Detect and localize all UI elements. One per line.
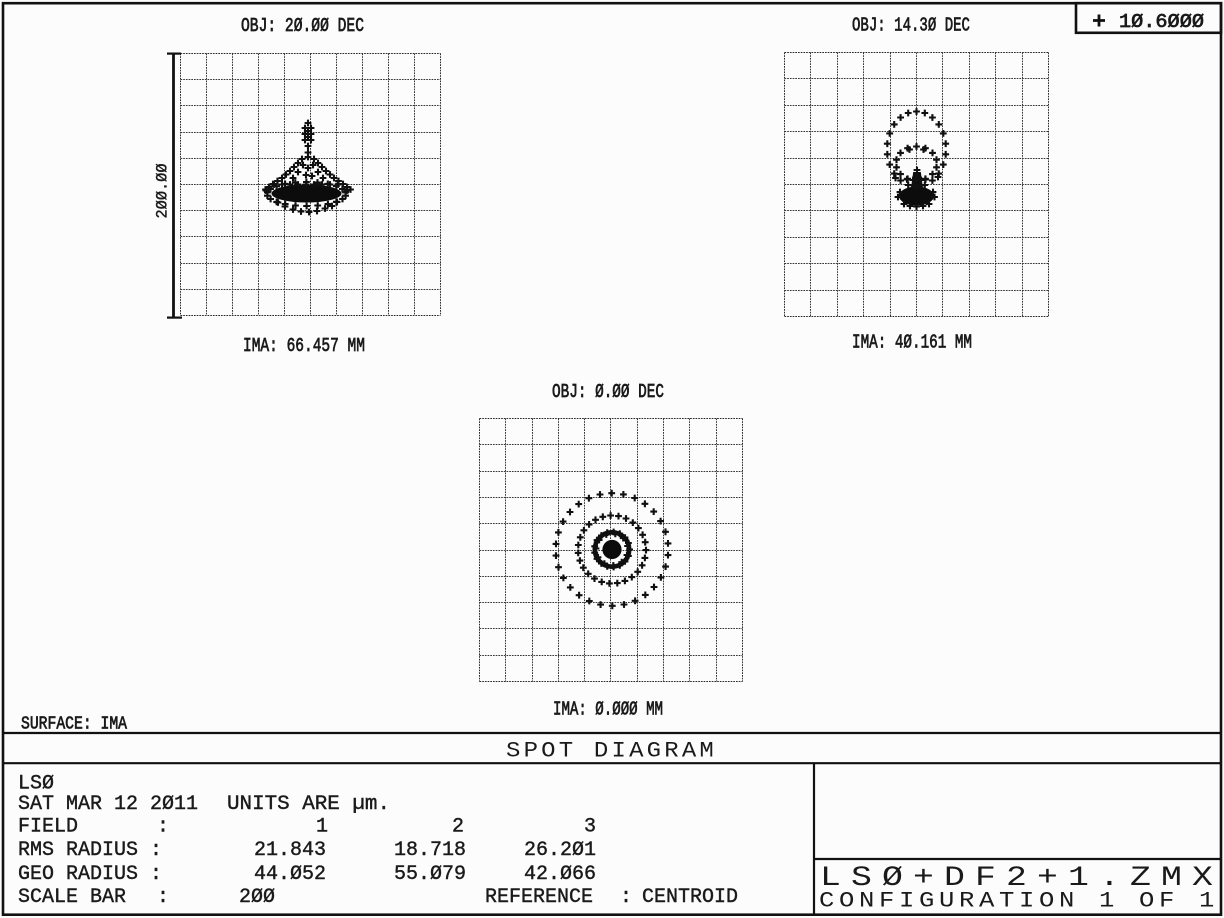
svg-text:OBJ: 14.3Ø DEC: OBJ: 14.3Ø DEC: [852, 15, 970, 37]
svg-text:55.Ø79: 55.Ø79: [394, 863, 466, 886]
svg-text:IMA: Ø.ØØØ MM: IMA: Ø.ØØØ MM: [553, 699, 663, 721]
svg-text:21.843: 21.843: [254, 839, 326, 862]
svg-text:SAT MAR 12 2Ø11: SAT MAR 12 2Ø11: [18, 793, 198, 816]
svg-text::: :: [620, 886, 632, 909]
svg-text:GEO RADIUS :: GEO RADIUS :: [18, 863, 162, 886]
svg-text:3: 3: [584, 816, 596, 839]
svg-text:44.Ø52: 44.Ø52: [254, 863, 326, 886]
svg-text:CONFIGURATION 1 OF 1: CONFIGURATION 1 OF 1: [819, 889, 1219, 914]
svg-text:2ØØ: 2ØØ: [239, 886, 275, 909]
svg-text:1Ø.6ØØØ: 1Ø.6ØØØ: [1119, 11, 1204, 33]
svg-text:CENTROID: CENTROID: [642, 886, 738, 909]
svg-text:OBJ: Ø.ØØ DEC: OBJ: Ø.ØØ DEC: [552, 381, 664, 403]
svg-text::: :: [157, 886, 169, 909]
svg-text:IMA: 4Ø.161 MM: IMA: 4Ø.161 MM: [852, 332, 972, 354]
svg-text:REFERENCE: REFERENCE: [485, 886, 593, 909]
svg-text:OBJ: 2Ø.ØØ DEC: OBJ: 2Ø.ØØ DEC: [241, 15, 364, 37]
svg-text:UNITS ARE µm.: UNITS ARE µm.: [227, 793, 390, 816]
svg-text:42.Ø66: 42.Ø66: [524, 863, 596, 886]
svg-text:18.718: 18.718: [394, 839, 466, 862]
svg-text:2ØØ.ØØ: 2ØØ.ØØ: [154, 164, 172, 219]
svg-text:SCALE BAR: SCALE BAR: [18, 886, 126, 909]
svg-text:SURFACE: IMA: SURFACE: IMA: [21, 714, 127, 734]
svg-text:1: 1: [316, 816, 328, 839]
svg-text:26.2Ø1: 26.2Ø1: [524, 839, 596, 862]
svg-text:2: 2: [452, 816, 464, 839]
svg-text::: :: [157, 816, 169, 839]
svg-text:RMS RADIUS :: RMS RADIUS :: [18, 839, 162, 862]
svg-text:FIELD: FIELD: [18, 816, 78, 839]
svg-text:SPOT DIAGRAM: SPOT DIAGRAM: [506, 737, 717, 763]
svg-text:IMA: 66.457 MM: IMA: 66.457 MM: [243, 335, 365, 357]
